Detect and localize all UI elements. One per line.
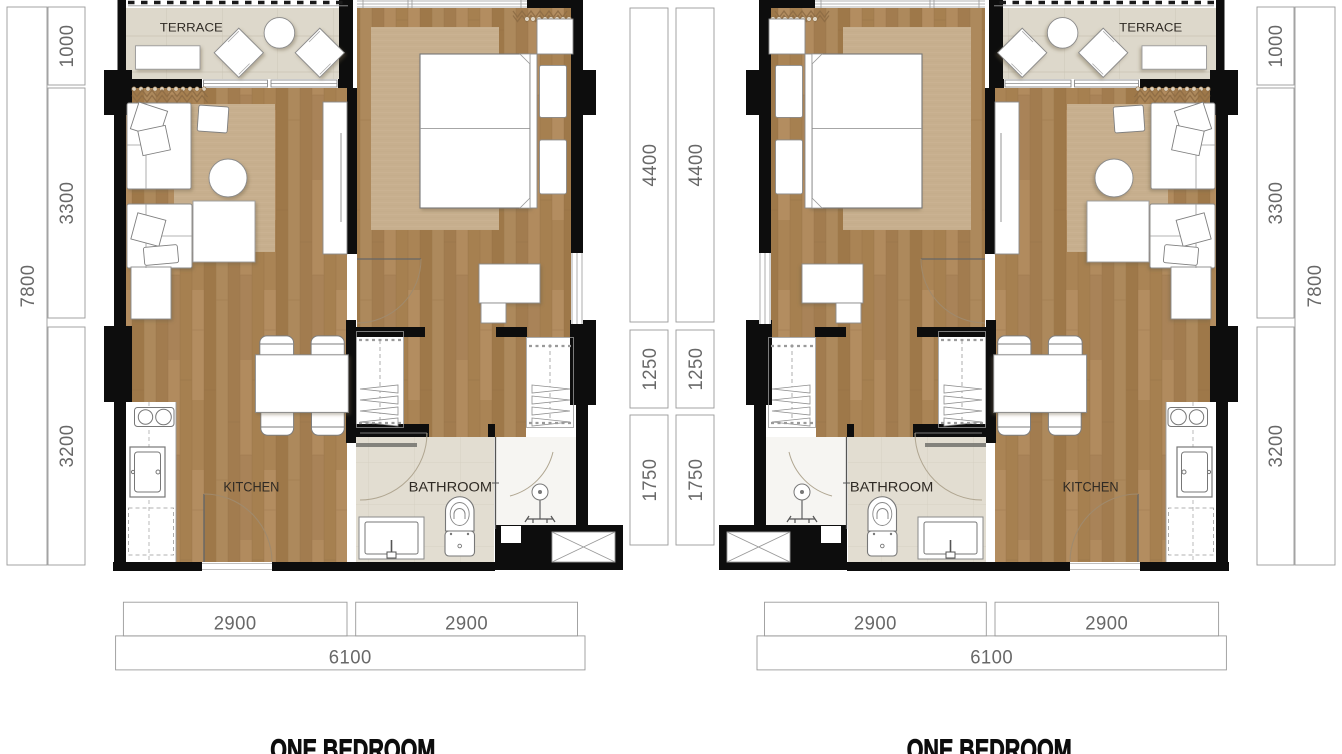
svg-text:ONE BEDROOM: ONE BEDROOM (270, 735, 435, 754)
svg-text:1250: 1250 (639, 348, 661, 391)
svg-text:7800: 7800 (17, 265, 39, 308)
svg-text:4400: 4400 (685, 144, 707, 187)
svg-text:2900: 2900 (214, 613, 257, 635)
svg-text:2900: 2900 (1085, 613, 1128, 635)
svg-text:6100: 6100 (329, 647, 372, 669)
svg-text:ONE BEDROOM: ONE BEDROOM (907, 735, 1072, 754)
svg-text:3200: 3200 (56, 425, 78, 468)
svg-text:3200: 3200 (1265, 425, 1287, 468)
svg-text:3300: 3300 (56, 182, 78, 225)
svg-text:6100: 6100 (970, 647, 1013, 669)
svg-text:TERRACE: TERRACE (1119, 22, 1182, 35)
svg-text:BATHROOM: BATHROOM (409, 479, 493, 494)
svg-text:4400: 4400 (639, 144, 661, 187)
svg-text:TERRACE: TERRACE (160, 22, 223, 35)
svg-text:1000: 1000 (1265, 25, 1287, 68)
svg-text:3300: 3300 (1265, 182, 1287, 225)
svg-text:BATHROOM: BATHROOM (850, 479, 934, 494)
svg-text:2900: 2900 (854, 613, 897, 635)
svg-text:KITCHEN: KITCHEN (1063, 479, 1119, 494)
svg-text:2900: 2900 (445, 613, 488, 635)
svg-text:KITCHEN: KITCHEN (223, 479, 279, 494)
svg-text:1000: 1000 (56, 25, 78, 68)
svg-text:1750: 1750 (639, 459, 661, 502)
svg-text:1750: 1750 (685, 459, 707, 502)
svg-text:1250: 1250 (685, 348, 707, 391)
svg-text:7800: 7800 (1304, 265, 1326, 308)
